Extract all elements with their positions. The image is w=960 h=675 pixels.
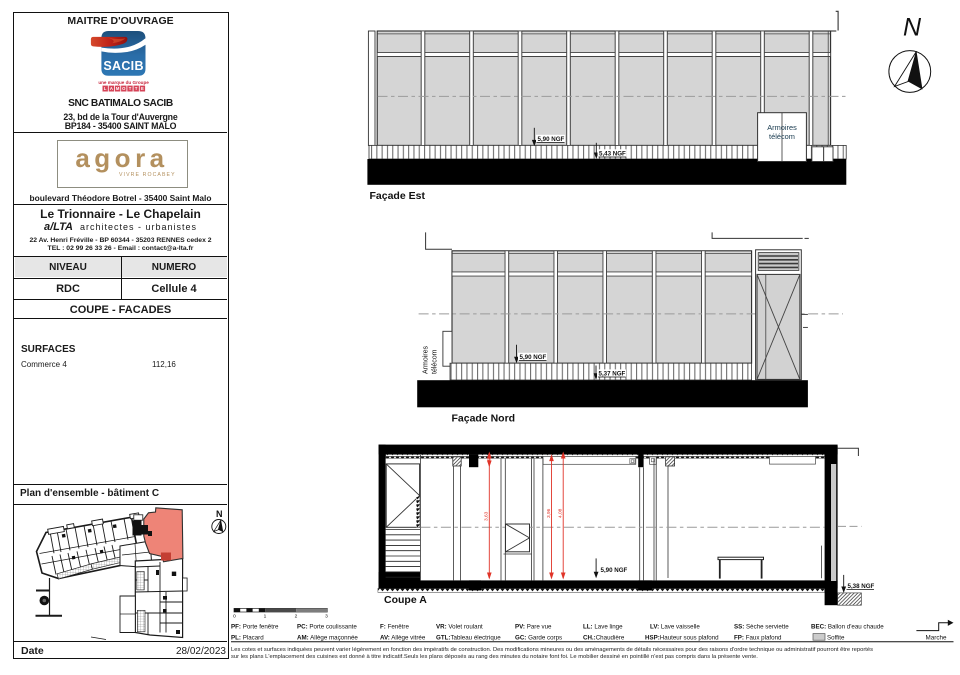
svg-text:sur les plans L'emplacement de: sur les plans L'emplacement des cuisines… xyxy=(231,654,758,660)
svg-text:HSP:Hauteur sous plafond: HSP:Hauteur sous plafond xyxy=(645,635,719,642)
svg-text:5,90 NGF: 5,90 NGF xyxy=(538,136,565,143)
svg-text:Façade Est: Façade Est xyxy=(370,190,426,202)
svg-text:5,90 NGF: 5,90 NGF xyxy=(601,567,628,574)
svg-text:SS: Sèche serviette: SS: Sèche serviette xyxy=(734,624,789,631)
svg-text:LL: Lave linge: LL: Lave linge xyxy=(583,624,623,631)
svg-text:0: 0 xyxy=(233,613,236,619)
svg-text:PC: Porte coulissante: PC: Porte coulissante xyxy=(297,624,357,631)
svg-text:L: L xyxy=(104,86,107,91)
svg-text:E: E xyxy=(141,86,144,91)
svg-text:45: 45 xyxy=(487,458,493,464)
svg-text:3,63: 3,63 xyxy=(484,511,490,521)
svg-text:Les cotes et surfaces indiquée: Les cotes et surfaces indiquées peuvent … xyxy=(231,647,873,653)
svg-text:Marche: Marche xyxy=(926,634,947,641)
svg-text:télécom: télécom xyxy=(769,132,795,141)
svg-text:N: N xyxy=(903,14,922,42)
svg-text:F: Fenêtre: F: Fenêtre xyxy=(380,624,409,631)
svg-text:FP: Faux plafond: FP: Faux plafond xyxy=(734,635,782,642)
svg-text:AV: Allège vitrée: AV: Allège vitrée xyxy=(380,635,426,642)
svg-text:CH.:Chaudière: CH.:Chaudière xyxy=(583,635,625,642)
svg-text:Armoires: Armoires xyxy=(767,123,797,132)
svg-text:Soffite: Soffite xyxy=(827,635,845,642)
svg-text:AM: Allège maçonnée: AM: Allège maçonnée xyxy=(297,635,358,642)
svg-text:3: 3 xyxy=(325,613,328,619)
svg-text:M: M xyxy=(116,86,120,91)
svg-text:N: N xyxy=(216,509,223,519)
svg-text:4,08: 4,08 xyxy=(558,508,564,518)
svg-text:5,43 NGF: 5,43 NGF xyxy=(599,150,626,157)
svg-text:5,90 NGF: 5,90 NGF xyxy=(520,354,547,361)
svg-text:Coupe A: Coupe A xyxy=(384,594,427,606)
svg-text:Armoires: Armoires xyxy=(423,345,430,374)
svg-text:SACIB: SACIB xyxy=(103,59,143,73)
svg-text:PF: Porte fenêtre: PF: Porte fenêtre xyxy=(231,624,279,631)
svg-text:5,37 NGF: 5,37 NGF xyxy=(599,370,626,377)
svg-text:A: A xyxy=(110,86,113,91)
svg-text:1: 1 xyxy=(264,613,267,619)
svg-text:GTL:Tableau électrique: GTL:Tableau électrique xyxy=(436,635,501,642)
svg-text:5,38 NGF: 5,38 NGF xyxy=(848,583,875,590)
svg-text:2: 2 xyxy=(295,613,298,619)
svg-text:T: T xyxy=(129,86,132,91)
svg-text:PL: Placard: PL: Placard xyxy=(231,635,264,642)
svg-text:BEC: Ballon d'eau chaude: BEC: Ballon d'eau chaude xyxy=(811,624,884,631)
svg-text:LV: Lave vaisselle: LV: Lave vaisselle xyxy=(650,624,700,631)
svg-text:VR: Volet roulant: VR: Volet roulant xyxy=(436,624,483,631)
svg-text:GC: Garde corps: GC: Garde corps xyxy=(515,635,562,642)
svg-text:3,96: 3,96 xyxy=(546,508,552,518)
svg-text:télécom: télécom xyxy=(432,349,439,374)
svg-text:T: T xyxy=(135,86,138,91)
svg-text:une marque du Groupe: une marque du Groupe xyxy=(98,80,149,85)
svg-text:PV: Pare vue: PV: Pare vue xyxy=(515,624,552,631)
svg-text:Façade Nord: Façade Nord xyxy=(452,413,516,425)
